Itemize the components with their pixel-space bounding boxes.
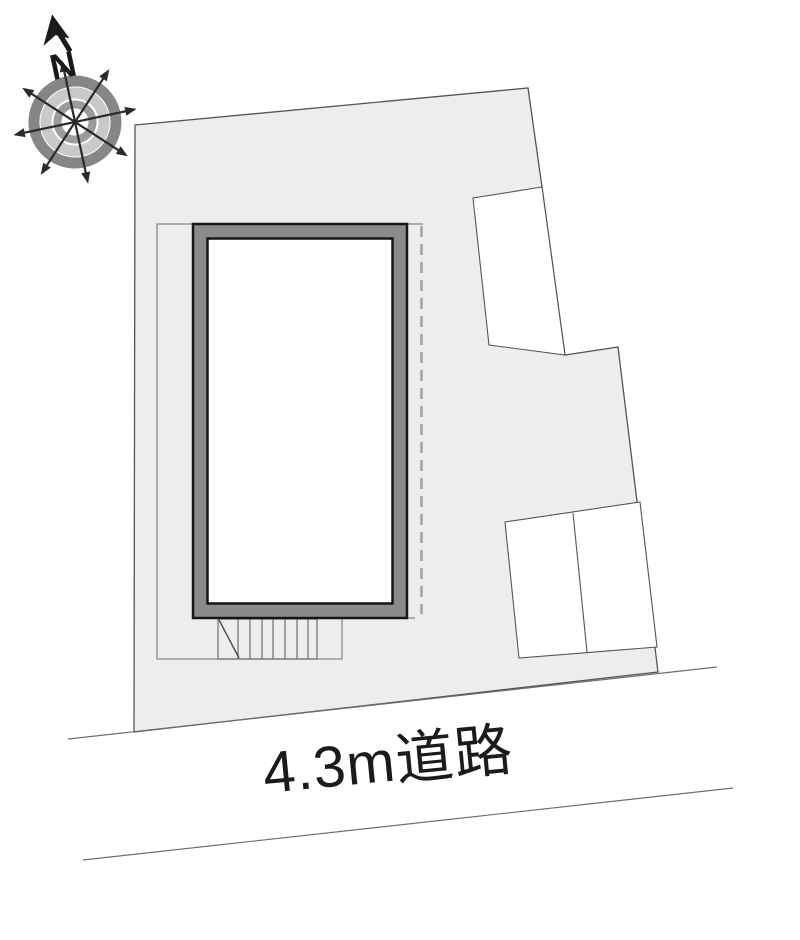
site-plan-page: 4.3m道路 [0, 0, 800, 940]
building-inner-wall [208, 239, 393, 604]
site-plan-drawing: 4.3m道路 [0, 0, 800, 940]
neighbor-building-lower [505, 502, 657, 658]
main-building [193, 224, 407, 618]
